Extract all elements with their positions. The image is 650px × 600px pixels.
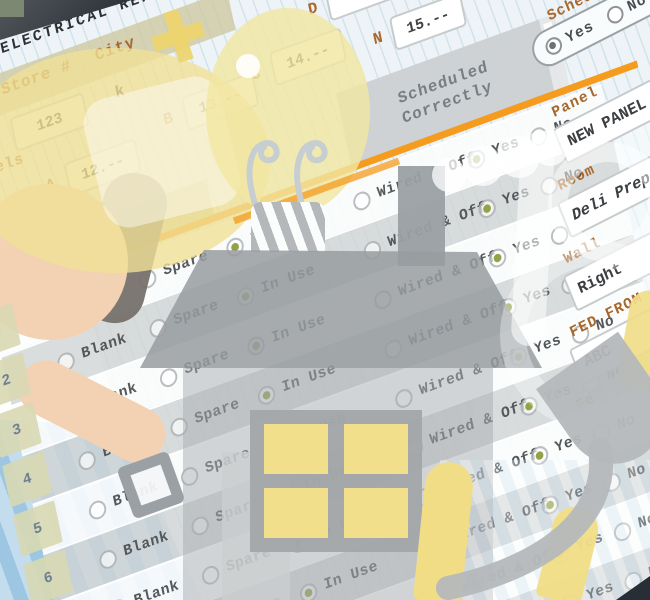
plug-cord-icon: [0, 0, 650, 600]
tablet-corner-accent: [0, 0, 24, 17]
screenshot-stage: ELECTRICAL REPORT Store # City 123 k els…: [0, 0, 650, 600]
